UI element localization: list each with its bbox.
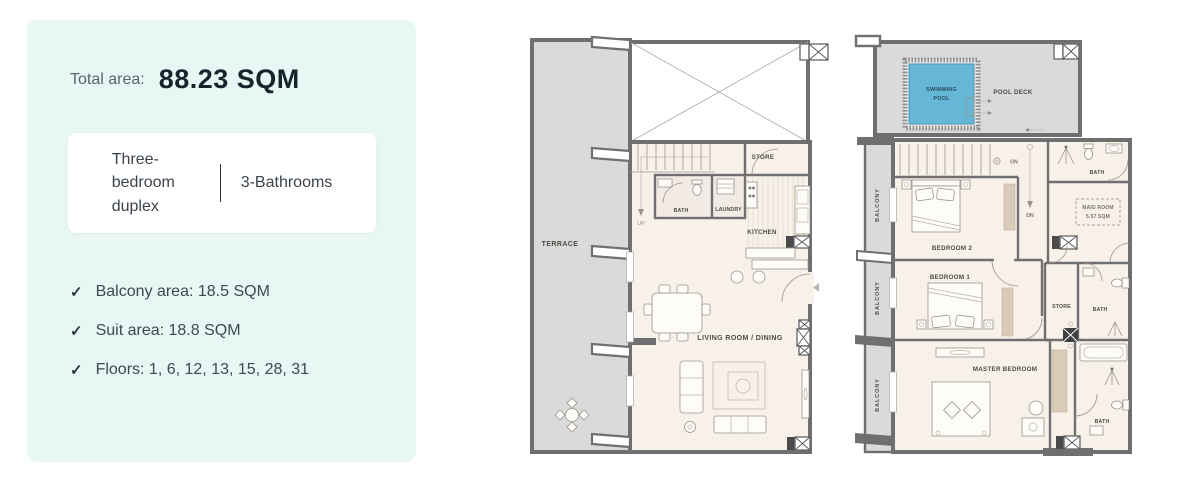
wardrobe-bedroom1 <box>1002 288 1013 336</box>
wardrobe-bedroom2 <box>1004 184 1015 230</box>
toilet-icon <box>692 180 702 196</box>
room-label-bath-top: BATH <box>1090 170 1105 176</box>
shaft-icon <box>800 44 828 60</box>
floor-plan-upper: SWIMMING POOL POOL DECK BALCONY BALCONY … <box>855 36 1130 456</box>
room-label-balcony-1: BALCONY <box>875 188 881 222</box>
room-label-bath: BATH <box>674 208 689 214</box>
room-label-terrace: TERRACE <box>542 241 579 248</box>
feature-floors: ✓ Floors: 1, 6, 12, 13, 15, 28, 31 <box>70 361 416 379</box>
feature-balcony-area: ✓ Balcony area: 18.5 SQM <box>70 283 416 301</box>
unit-type-label: Three-bedroom duplex <box>112 148 200 218</box>
unit-info-panel: Total area: 88.23 SQM Three-bedroom dupl… <box>27 20 416 462</box>
washer-icon <box>717 179 734 194</box>
floor-plans-svg: STORE UP BATH LAUNDRY <box>500 20 1186 472</box>
floor-plans: STORE UP BATH LAUNDRY <box>500 20 1186 472</box>
feature-label: Floors: 1, 6, 12, 13, 15, 28, 31 <box>96 361 309 379</box>
stairs-up-label: UP <box>637 221 645 227</box>
shaft-icon <box>1052 236 1077 249</box>
tv-console <box>802 370 809 418</box>
feature-suit-area: ✓ Suit area: 18.8 SQM <box>70 322 416 340</box>
stove-icon <box>746 182 757 208</box>
bed-master <box>932 382 990 436</box>
bath-vanity <box>658 179 672 187</box>
check-icon: ✓ <box>70 322 83 340</box>
desk-icon <box>1022 418 1044 436</box>
pool-label-1: SWIMMING <box>926 87 957 93</box>
room-label-bedroom1: BEDROOM 1 <box>930 274 970 281</box>
bathrooms-label: 3-Bathrooms <box>241 174 333 192</box>
room-label-kitchen: KITCHEN <box>747 229 777 236</box>
total-area-row: Total area: 88.23 SQM <box>70 64 416 95</box>
room-label-maid-2: 5.57 SQM <box>1086 214 1110 220</box>
bed-bedroom2 <box>902 180 970 232</box>
unit-type-card: Three-bedroom duplex 3-Bathrooms <box>68 133 376 233</box>
terrace-doors <box>627 252 634 406</box>
check-icon: ✓ <box>70 361 83 379</box>
card-divider <box>220 164 221 202</box>
feature-label: Balcony area: 18.5 SQM <box>96 283 270 301</box>
room-label-pool-deck: POOL DECK <box>993 89 1033 96</box>
room-label-master: MASTER BEDROOM <box>973 366 1037 373</box>
shaft-icon <box>1054 44 1079 59</box>
floor-plan-lower: STORE UP BATH LAUNDRY <box>532 37 828 452</box>
check-icon: ✓ <box>70 283 83 301</box>
bathtub-icon <box>1080 344 1127 361</box>
shaft-icon <box>787 437 810 450</box>
sink-icon <box>1083 268 1094 276</box>
shaft-icon <box>797 320 810 355</box>
room-label-bedroom2: BEDROOM 2 <box>932 245 972 252</box>
room-label-balcony-2: BALCONY <box>875 281 881 315</box>
total-area-label: Total area: <box>70 71 145 89</box>
room-label-maid-1: MAID ROOM <box>1082 205 1114 211</box>
toilet-icon <box>1084 144 1093 160</box>
room-label-laundry: LAUNDRY <box>715 207 742 213</box>
room-label-bath-bottom: BATH <box>1095 419 1110 425</box>
closet-master <box>1052 350 1067 412</box>
toilet-icon <box>1112 400 1130 410</box>
stairs-dn-label: DN <box>1026 213 1034 219</box>
pool-label-2: POOL <box>933 96 950 102</box>
room-label-balcony-3: BALCONY <box>875 378 881 412</box>
room-label-store: STORE <box>752 154 775 161</box>
sink-icon <box>1090 426 1103 435</box>
stairs-on-label: ON <box>1010 160 1018 166</box>
balcony-doors <box>890 188 897 412</box>
total-area-value: 88.23 SQM <box>159 64 300 95</box>
room-label-store-upper: STORE <box>1052 304 1071 310</box>
feature-label: Suit area: 18.8 SQM <box>96 322 241 340</box>
room-label-bath-mid: BATH <box>1093 307 1108 313</box>
dresser-icon <box>936 348 984 357</box>
room-label-living: LIVING ROOM / DINING <box>697 335 783 342</box>
bed-bedroom1 <box>917 283 993 329</box>
chair-icon <box>1029 401 1043 415</box>
toilet-icon <box>1112 278 1130 288</box>
feature-list: ✓ Balcony area: 18.5 SQM ✓ Suit area: 18… <box>70 283 416 379</box>
